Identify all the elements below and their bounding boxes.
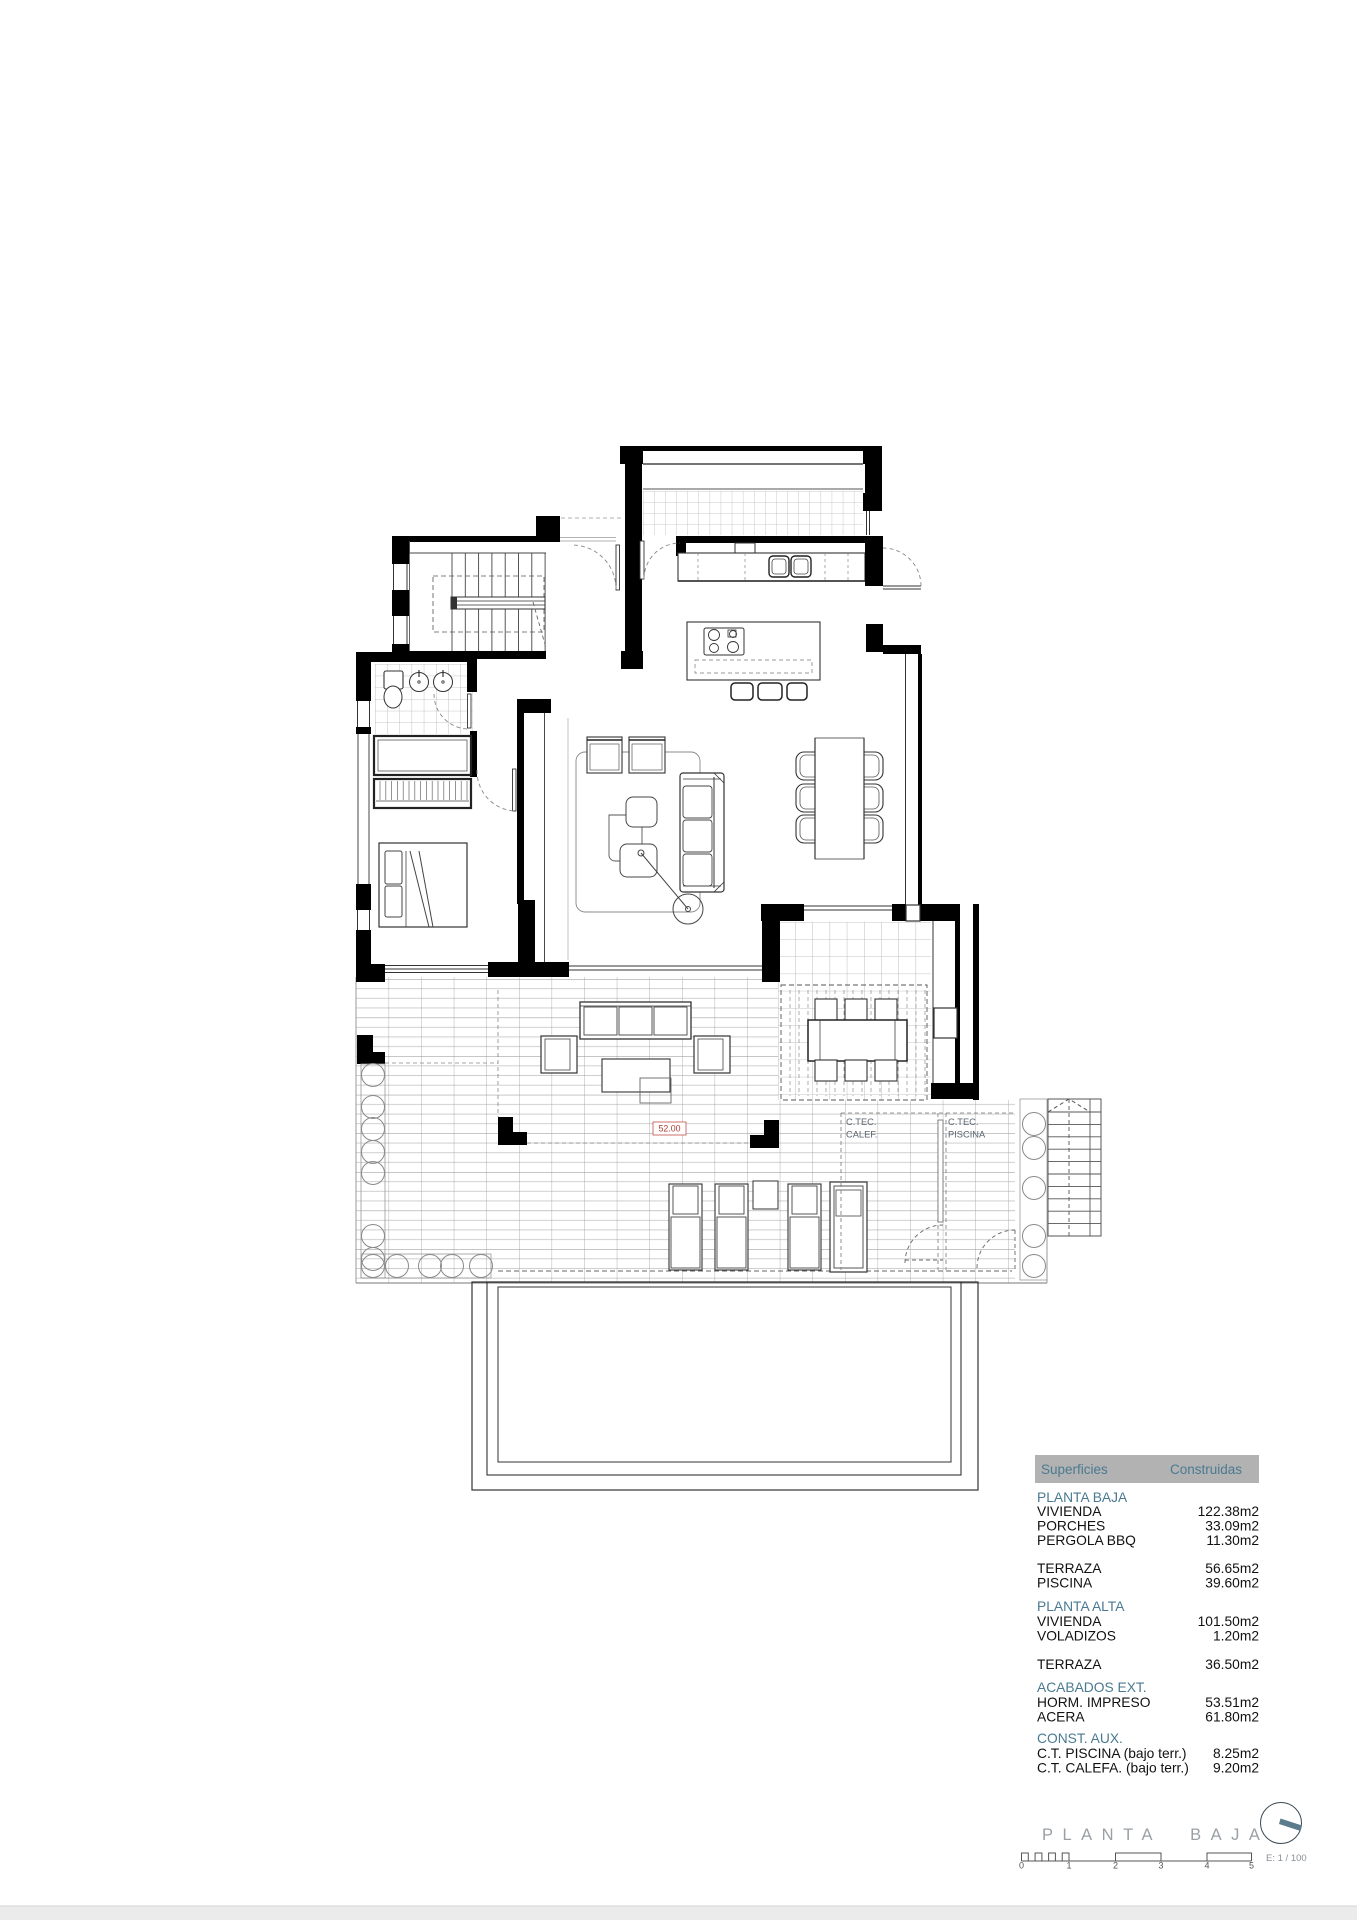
svg-text:PISCINA: PISCINA: [1037, 1576, 1093, 1591]
svg-text:1: 1: [1066, 1861, 1071, 1871]
svg-text:HORM. IMPRESO: HORM. IMPRESO: [1037, 1695, 1151, 1710]
svg-text:PLANTA BAJA: PLANTA BAJA: [1042, 1826, 1269, 1844]
svg-text:122.38m2: 122.38m2: [1198, 1504, 1259, 1519]
svg-text:1.20m2: 1.20m2: [1213, 1629, 1259, 1644]
svg-text:0: 0: [1019, 1861, 1024, 1871]
svg-text:VIVIENDA: VIVIENDA: [1037, 1614, 1102, 1629]
svg-text:61.80m2: 61.80m2: [1205, 1710, 1259, 1725]
svg-text:33.09m2: 33.09m2: [1205, 1519, 1259, 1534]
svg-text:9.20m2: 9.20m2: [1213, 1761, 1259, 1776]
svg-text:C.T. CALEFA. (bajo terr.): C.T. CALEFA. (bajo terr.): [1037, 1761, 1189, 1776]
svg-text:Construidas: Construidas: [1170, 1462, 1242, 1477]
svg-text:101.50m2: 101.50m2: [1198, 1614, 1259, 1629]
svg-text:TERRAZA: TERRAZA: [1037, 1657, 1102, 1672]
svg-text:4: 4: [1204, 1861, 1209, 1871]
svg-text:ACERA: ACERA: [1037, 1710, 1085, 1725]
svg-text:PLANTA BAJA: PLANTA BAJA: [1037, 1490, 1128, 1505]
svg-text:E: 1 / 100: E: 1 / 100: [1266, 1853, 1307, 1864]
svg-text:56.65m2: 56.65m2: [1205, 1561, 1259, 1576]
svg-text:8.25m2: 8.25m2: [1213, 1746, 1259, 1761]
svg-text:TERRAZA: TERRAZA: [1037, 1561, 1102, 1576]
svg-text:VOLADIZOS: VOLADIZOS: [1037, 1629, 1116, 1644]
svg-text:PERGOLA BBQ: PERGOLA BBQ: [1037, 1533, 1136, 1548]
svg-text:36.50m2: 36.50m2: [1205, 1657, 1259, 1672]
svg-text:C.T. PISCINA (bajo terr.): C.T. PISCINA (bajo terr.): [1037, 1746, 1187, 1761]
svg-text:PORCHES: PORCHES: [1037, 1519, 1105, 1534]
svg-text:39.60m2: 39.60m2: [1205, 1576, 1259, 1591]
svg-text:CONST. AUX.: CONST. AUX.: [1037, 1731, 1123, 1746]
svg-text:11.30m2: 11.30m2: [1206, 1533, 1259, 1548]
svg-text:2: 2: [1113, 1861, 1118, 1871]
svg-text:3: 3: [1158, 1861, 1163, 1871]
svg-text:ACABADOS EXT.: ACABADOS EXT.: [1037, 1680, 1147, 1695]
svg-text:5: 5: [1249, 1861, 1254, 1871]
svg-text:53.51m2: 53.51m2: [1205, 1695, 1259, 1710]
svg-text:PLANTA ALTA: PLANTA ALTA: [1037, 1599, 1125, 1614]
svg-text:VIVIENDA: VIVIENDA: [1037, 1504, 1102, 1519]
svg-text:Superficies: Superficies: [1041, 1462, 1108, 1477]
